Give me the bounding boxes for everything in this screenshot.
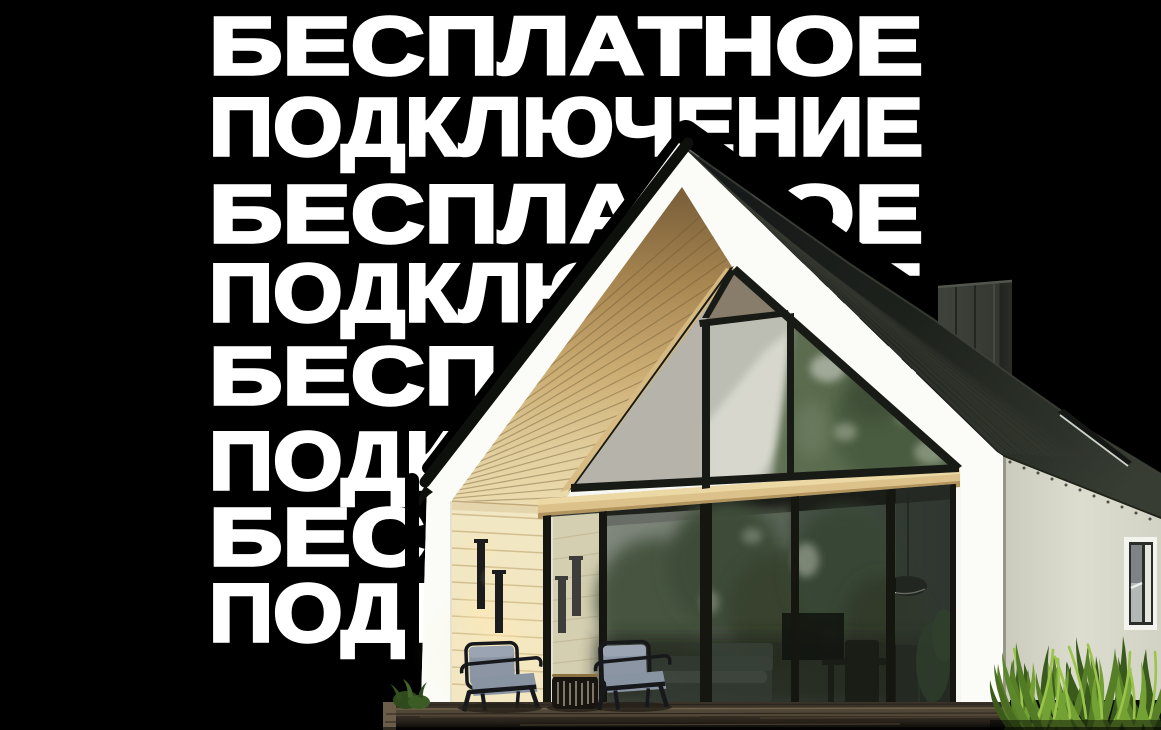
svg-text:ПОДКЛЮЧЕНИЕ: ПОДКЛЮЧЕНИЕ — [209, 82, 923, 173]
svg-text:БЕСПЛАТНОЕ: БЕСПЛАТНОЕ — [209, 1, 923, 92]
